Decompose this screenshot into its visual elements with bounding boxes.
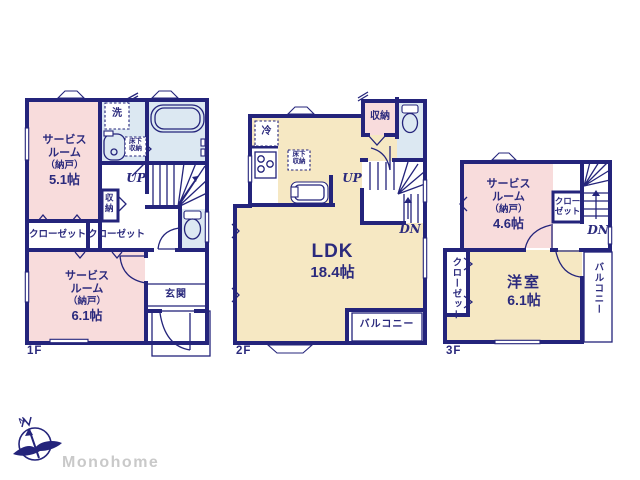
label-underfloor-storage-2f: 床下 収納 [288,151,310,165]
label-storage-1f: 収納 [104,193,114,214]
label-laundry: 洗 [105,108,129,120]
label-stairs-up-2f: UP [340,171,364,185]
label-balcony-2f: バルコニー [352,319,422,331]
label-ldk: LDK 18.4帖 [270,241,395,282]
floor-plan-document: サービス ルーム （納戸） 5.1帖 洗 床下 収納 UP 収納 クローゼット … [0,0,640,480]
label-service-room-6-1: サービス ルーム （納戸） 6.1帖 [29,270,145,323]
label-service-room-4-6: サービス ルーム （納戸） 4.6帖 [464,178,553,231]
label-underfloor-storage-1f: 床下 収納 [125,138,146,152]
label-floor-3f: 3F [446,345,470,359]
label-western-room: 洋室 6.1帖 [468,274,580,309]
label-stairs-down-2f: DN [396,222,424,236]
label-floor-2f: 2F [236,345,260,359]
label-entrance: 玄関 [147,289,205,301]
label-refrigerator: 冷 [255,126,278,138]
label-stairs-down-3f: DN [584,223,612,237]
label-service-room-5-1: サービス ルーム （納戸） 5.1帖 [29,134,100,187]
label-balcony-3f: バルコニー [592,262,603,315]
label-closet-right: クローゼット [87,229,146,240]
logo-text: Monohome [62,454,159,472]
label-closet-upper-3f: クロー ゼット [553,196,582,216]
label-floor-1f: 1F [27,345,51,359]
label-stairs-up-1f: UP [124,171,148,185]
label-closet-side-3f: クローゼット [450,257,461,320]
label-closet-left: クローゼット [27,229,88,240]
label-storage-2f: 収納 [363,111,397,123]
